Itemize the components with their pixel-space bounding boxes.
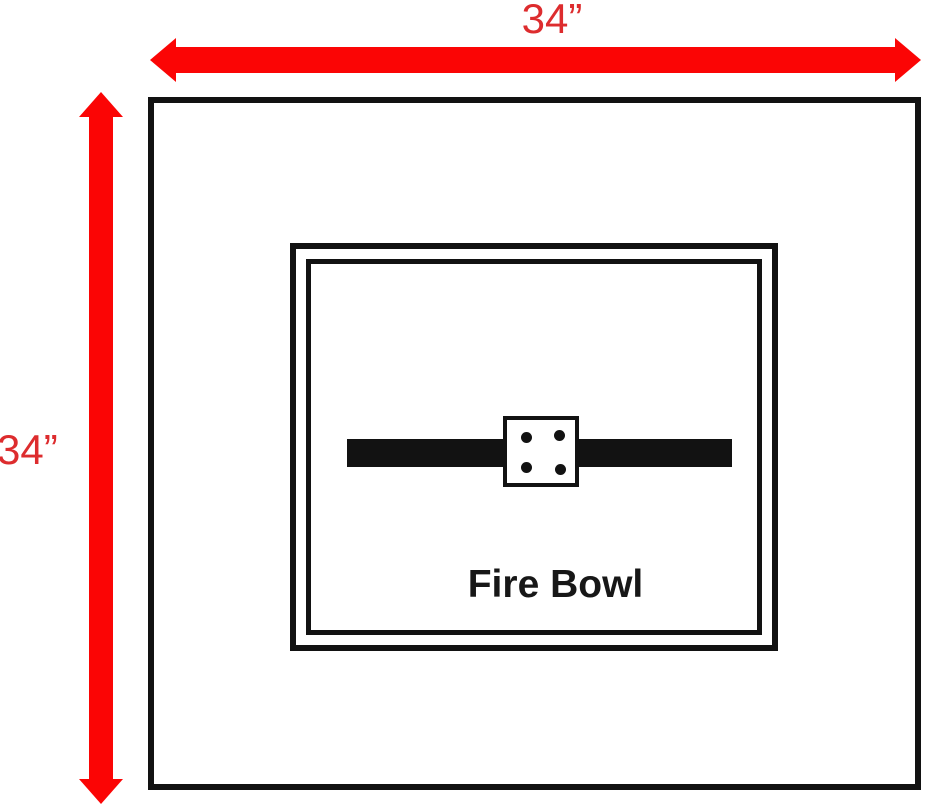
width-arrowhead-right-icon [895, 38, 921, 82]
top-width-dimension-label: 34” [492, 0, 612, 40]
burner-port-dot [521, 462, 532, 473]
height-dimension-arrow [89, 114, 113, 781]
width-dimension-arrow [172, 47, 899, 73]
burner-port-dot [521, 432, 532, 443]
left-height-dimension-label: 34” [0, 429, 58, 471]
fire-bowl-dimension-diagram: 34” 34” Fire Bowl [0, 0, 926, 809]
fire-bowl-caption: Fire Bowl [306, 565, 761, 604]
burner-hub [503, 416, 579, 487]
burner-port-dot [554, 430, 565, 441]
height-arrowhead-bottom-icon [79, 779, 123, 804]
burner-port-dot [555, 464, 566, 475]
